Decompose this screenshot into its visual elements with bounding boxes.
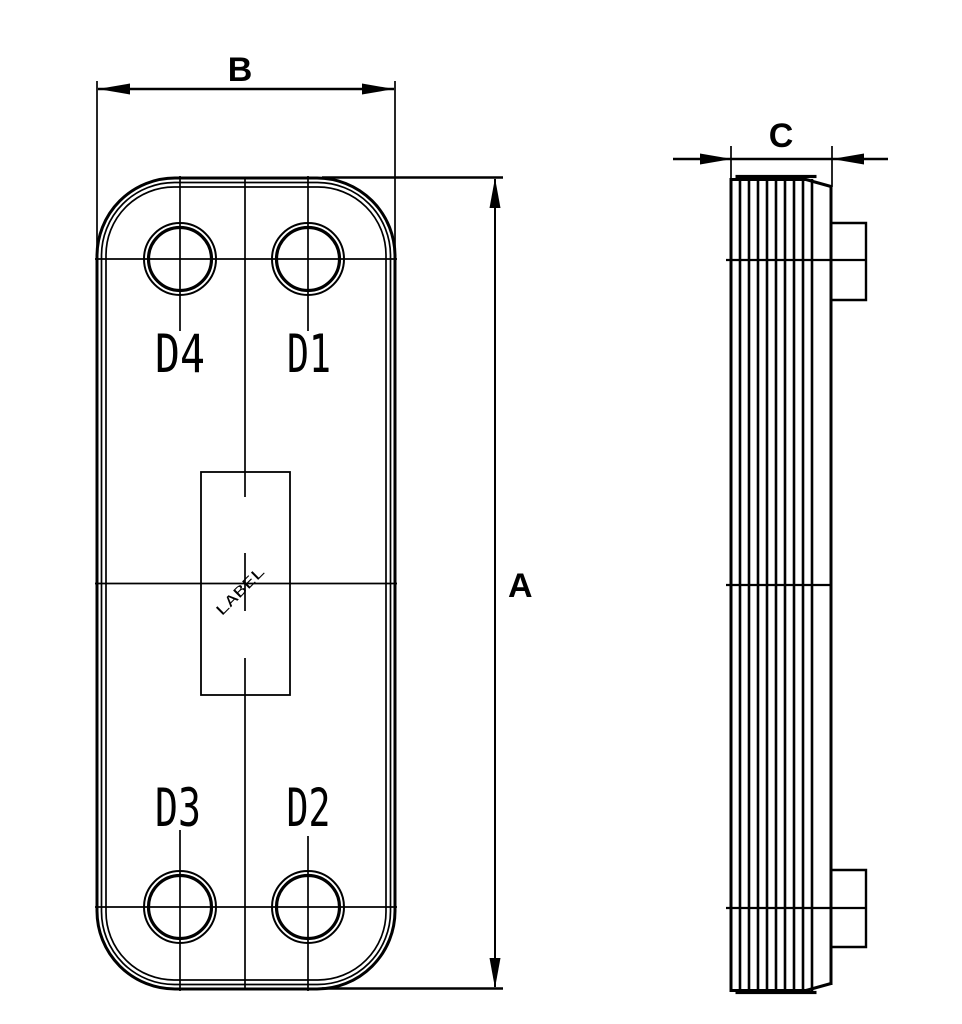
dim-b-arrow-right bbox=[362, 84, 394, 95]
side-top-edge bbox=[731, 180, 831, 187]
side-view bbox=[726, 177, 866, 993]
port-label-d4: D4 bbox=[155, 324, 205, 385]
port-label-d2: D2 bbox=[287, 778, 331, 839]
side-connection-top bbox=[831, 223, 866, 300]
dim-a-arrow-bottom bbox=[490, 958, 501, 988]
drawing-page: D4 D1 D3 D2 LABEL B bbox=[0, 0, 962, 1024]
drawing-canvas: D4 D1 D3 D2 LABEL B bbox=[0, 0, 962, 1024]
dim-a-label: A bbox=[508, 567, 533, 605]
dim-c-label: C bbox=[769, 117, 794, 155]
side-bottom-edge bbox=[731, 984, 831, 991]
dim-b-arrow-left bbox=[98, 84, 130, 95]
dim-c-arrow-left bbox=[700, 154, 732, 165]
port-label-d3: D3 bbox=[155, 778, 201, 839]
port-label-d1: D1 bbox=[287, 324, 331, 385]
label-plate-text: LABEL bbox=[213, 564, 268, 619]
dim-a-arrow-top bbox=[490, 178, 501, 208]
dimension-width-b: B bbox=[97, 51, 395, 268]
front-view: D4 D1 D3 D2 LABEL bbox=[95, 176, 397, 991]
dim-b-label: B bbox=[228, 51, 253, 89]
dim-c-arrow-right bbox=[832, 154, 864, 165]
